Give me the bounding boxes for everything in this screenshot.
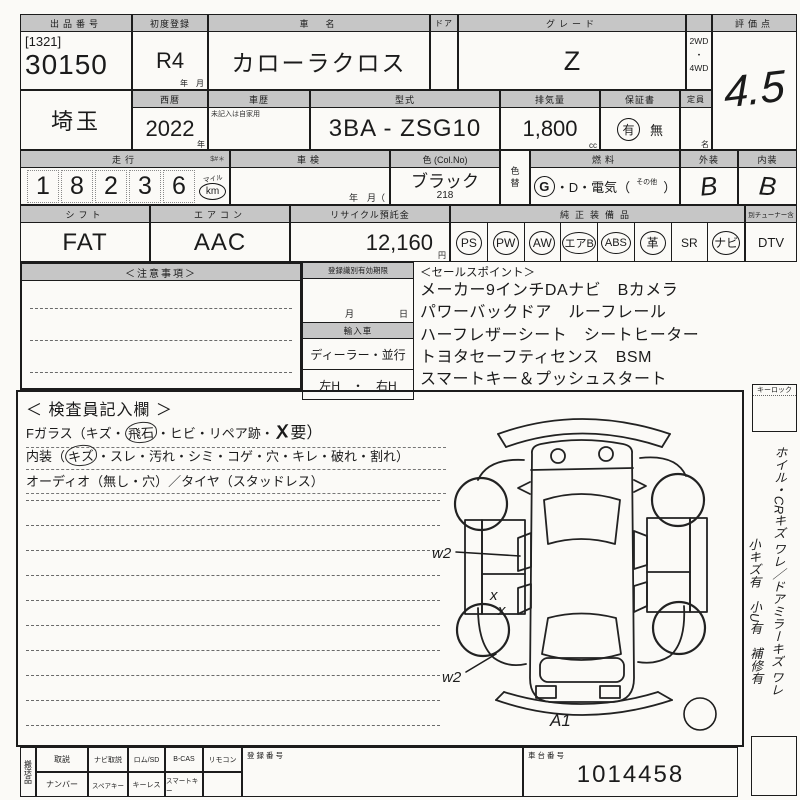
auction-number: 30150: [25, 49, 127, 81]
displacement-label: 排気量: [501, 91, 599, 108]
fuel-other: その他: [636, 177, 657, 187]
interior-suffix: ・スレ・汚れ・シミ・コゲ・穴・キレ・破れ・割れ）: [97, 449, 409, 464]
registration-number-label: 登録番号: [243, 748, 522, 763]
auction-sheet: 出品番号 [1321] 30150 初度登録 R4 年 月 車 名 カローラクロ…: [0, 0, 800, 800]
recycle-deposit-box: リサイクル預託金 12,160 円: [290, 205, 450, 262]
dashed-line: [26, 650, 440, 651]
color-box: 色 (Col.No) ブラック 218: [390, 150, 500, 205]
import-label: 輸入車: [303, 323, 413, 339]
equipment-navi: ナビ: [708, 223, 744, 262]
grade-value: Z: [459, 32, 685, 90]
item-spare-key: スペアキー: [88, 772, 128, 797]
mileage-label: 走行: [21, 151, 229, 168]
tail-light-left: [536, 686, 556, 698]
score-label: 評価点: [713, 15, 796, 32]
recycle-value: 12,160: [366, 230, 433, 256]
auction-number-label: 出品番号: [21, 15, 131, 32]
item-bcas: B-CAS: [165, 747, 203, 772]
windshield: [544, 494, 620, 544]
expiry-day-label: 日: [399, 307, 408, 320]
carry-items-header: 搬送品: [20, 747, 36, 797]
equipment-label: 純正装備品: [451, 206, 744, 223]
side-memo-wheel: ホイル・CRキズ ワレ／ドアミラーキズ ワレ: [765, 446, 789, 746]
capacity-label: 定員: [681, 91, 711, 108]
grade-label: グレード: [459, 15, 685, 32]
color-change-box: 色 替: [500, 150, 530, 205]
dtv-box: 別チューナー含 DTV: [745, 205, 797, 262]
recycle-label: リサイクル預託金: [291, 206, 449, 223]
exterior-grade: B: [699, 170, 719, 202]
mileage-digit: 1: [27, 170, 59, 203]
chassis-number-box: 車台番号 1014458: [523, 747, 738, 797]
front-glass-x-mark: X: [274, 421, 290, 445]
interior-label: 内装: [739, 151, 796, 168]
equipment-box: 純正装備品 PS PW AW エアB ABS 革 SR ナビ: [450, 205, 745, 262]
interior-grade: B: [758, 170, 777, 202]
exterior-label: 外装: [681, 151, 737, 168]
dashed-line: [26, 525, 440, 526]
dashed-line: [26, 675, 440, 676]
damage-mark-a1: A1: [549, 711, 571, 730]
expiry-month-label: 月: [345, 307, 354, 320]
first-registration-value: R4: [156, 48, 184, 74]
color-change-top: 色: [510, 166, 519, 178]
front-bumper-outline: [498, 419, 670, 434]
item-navi-manual: ナビ取説: [88, 747, 128, 772]
sales-point-line: パワーバックドア ルーフレール: [420, 302, 755, 324]
keylock-label: キーロック: [753, 385, 796, 396]
headlight-left: [551, 449, 565, 463]
warranty-no: 無: [650, 120, 663, 139]
shift-label: シフト: [21, 206, 149, 223]
sales-point-line: トヨタセーフティセンス BSM: [420, 347, 755, 369]
displacement-value: 1,800: [522, 116, 577, 142]
exterior-box: 外装 B: [680, 150, 738, 205]
registration-number-box: 登録番号: [242, 747, 523, 797]
model-value: 3BA - ZSG10: [311, 108, 499, 150]
history-box: 車歴 未記入は自家用: [208, 90, 310, 150]
dashed-line: [26, 550, 440, 551]
car-name-box: 車 名 カローラクロス: [208, 14, 430, 90]
dtv-note: 別チューナー含: [746, 206, 796, 223]
sales-points-label: ＜セールスポイント＞: [420, 264, 755, 280]
mirror-left: [518, 482, 530, 494]
fuel-label: 燃料: [531, 151, 679, 168]
hand-drawn-circle-mark: [684, 698, 716, 730]
mileage-unit-km: km: [199, 183, 226, 200]
color-change-bottom: 替: [510, 178, 519, 190]
shift-box: シフト FAT: [20, 205, 150, 262]
door-label: ドア: [431, 15, 457, 32]
right-bottom-empty-box: [751, 736, 797, 796]
right-front-window: [634, 531, 647, 569]
auction-lane: [1321]: [25, 34, 127, 49]
year-box: 西暦 2022 年: [132, 90, 208, 150]
dashed-line: [26, 725, 440, 726]
sales-points: ＜セールスポイント＞ メーカー9インチDAナビ Bカメラ パワーバックドア ルー…: [420, 264, 755, 388]
region-box: 埼玉: [20, 90, 132, 150]
registration-expiry-label: 登録識別有効期限: [303, 263, 413, 279]
warranty-yes: 有: [617, 118, 640, 141]
left-outer-panel: [465, 520, 482, 614]
drive-dot: ・: [687, 49, 711, 63]
car-body-outline: [530, 440, 634, 702]
equipment-aw: AW: [525, 223, 562, 262]
inspection-box: 車検 年 月（: [230, 150, 390, 205]
fuel-gasoline: G: [534, 176, 555, 197]
auction-number-box: 出品番号 [1321] 30150: [20, 14, 132, 90]
import-dealer-option: ディーラー・並行: [303, 339, 413, 370]
inspection-label: 車検: [231, 151, 389, 168]
dashed-line: [30, 340, 292, 341]
fuel-box: 燃料 G ・D・電気（ その他 ）: [530, 150, 680, 205]
aircon-value: AAC: [151, 223, 289, 262]
first-registration-label: 初度登録: [133, 15, 207, 32]
equipment-airbag: エアB: [561, 223, 598, 262]
color-code: 218: [437, 191, 454, 201]
item-number-plate: ナンバー: [36, 772, 88, 797]
fuel-close-paren: ）: [663, 177, 676, 196]
aircon-label: エアコン: [151, 206, 289, 223]
sales-point-line: メーカー9インチDAナビ Bカメラ: [420, 280, 755, 302]
damage-mark-w2-rear: w2: [442, 669, 462, 686]
rear-window: [542, 614, 621, 661]
mileage-digit: 3: [129, 170, 161, 203]
wheel-front-left: [455, 478, 507, 530]
recycle-unit: 円: [438, 250, 446, 261]
dashed-line: [26, 700, 440, 701]
warranty-label: 保証書: [601, 91, 679, 108]
drive-4wd: 4WD: [687, 62, 711, 76]
item-smart-key: スマートキー: [165, 772, 203, 797]
front-glass-line: Fガラス（キズ・飛石・ヒビ・リペア跡・X要）: [26, 419, 446, 448]
grade-box: グレード Z: [458, 14, 686, 90]
year-label: 西暦: [133, 91, 207, 108]
year-unit: 年: [197, 139, 205, 150]
mileage-unit-mile: マイル: [202, 171, 223, 184]
inspector-title: ＜ 検査員記入欄 ＞: [26, 396, 173, 420]
mileage-box: 走行 $#＊ 1 8 2 3 6 マイル km: [20, 150, 230, 205]
region-value: 埼玉: [21, 91, 131, 149]
model-label: 型式: [311, 91, 499, 108]
model-box: 型式 3BA - ZSG10: [310, 90, 500, 150]
dtv-value: DTV: [746, 223, 796, 262]
interior-box: 内装 B: [738, 150, 797, 205]
car-damage-diagram: w2 x x w2 A1: [428, 392, 744, 744]
history-note: 未記入は自家用: [209, 108, 309, 120]
interior-circled-item: キズ: [64, 444, 97, 467]
capacity-box: 定員 名: [680, 90, 712, 150]
item-manual: 取説: [36, 747, 88, 772]
audio-tire-line: オーディオ（無し・穴）／タイヤ（スタッドレス）: [26, 471, 446, 494]
mileage-digit: 2: [95, 170, 127, 203]
mileage-note: $#＊: [210, 154, 225, 164]
notes-box: ＜注意事項＞: [20, 262, 302, 390]
color-label: 色 (Col.No): [391, 151, 499, 168]
displacement-unit: cc: [589, 141, 597, 150]
front-glass-prefix: Fガラス（キズ・: [26, 426, 125, 441]
dashed-line: [26, 500, 440, 501]
displacement-box: 排気量 1,800 cc: [500, 90, 600, 150]
item-remote: リモコン: [203, 747, 242, 772]
score-value: 4.5: [724, 61, 786, 119]
equipment-leather: 革: [635, 223, 672, 262]
history-label: 車歴: [209, 91, 309, 108]
registration-expiry-box: 登録識別有効期限 月 日 輸入車 ディーラー・並行 左H ・ 右H: [302, 262, 414, 400]
fender-front-left: [478, 460, 524, 480]
first-registration-box: 初度登録 R4 年 月: [132, 14, 208, 90]
dashed-line: [30, 372, 292, 373]
car-name-value: カローラクロス: [209, 32, 429, 90]
car-name-label: 車 名: [209, 15, 429, 32]
front-glass-circled-item: 飛石: [124, 421, 157, 444]
rear-hatch: [540, 658, 624, 682]
dashed-line: [26, 600, 440, 601]
score-box: 評価点 4.5: [712, 14, 797, 150]
sales-point-line: スマートキー＆プッシュスタート: [420, 369, 755, 391]
wheel-rear-right: [653, 602, 705, 654]
shift-value: FAT: [21, 223, 149, 262]
mileage-digit: 8: [61, 170, 93, 203]
interior-line: 内装（キズ・スレ・汚れ・シミ・コゲ・穴・キレ・破れ・割れ）: [26, 445, 446, 470]
right-outer-panel: [690, 518, 707, 612]
dashed-line: [26, 575, 440, 576]
mirror-right: [634, 480, 646, 492]
headlight-right: [599, 447, 613, 461]
drive-label: [687, 15, 711, 32]
tail-light-right: [600, 686, 620, 698]
damage-mark-x-lower: x: [497, 602, 506, 619]
chassis-number-value: 1014458: [524, 761, 737, 789]
item-remote-value: [203, 772, 242, 797]
warranty-box: 保証書 有 無: [600, 90, 680, 150]
drive-box: 2WD ・ 4WD: [686, 14, 712, 90]
item-rom-sd: ロム/SD: [128, 747, 165, 772]
mileage-digit: 6: [163, 170, 195, 203]
capacity-unit: 名: [701, 139, 709, 150]
inspection-units: 年 月（: [349, 191, 385, 204]
item-keyless: キーレス: [128, 772, 165, 797]
equipment-ps: PS: [451, 223, 488, 262]
first-registration-units: 年 月: [180, 78, 204, 89]
equipment-pw: PW: [488, 223, 525, 262]
dashed-line: [30, 308, 292, 309]
front-glass-mid: ・ヒビ・リペア跡・: [157, 426, 274, 441]
dashed-line: [26, 625, 440, 626]
damage-mark-w2-front: w2: [432, 545, 452, 562]
fuel-options: ・D・電気（: [556, 177, 630, 196]
sales-point-line: ハーフレザーシート シートヒーター: [420, 325, 755, 347]
damage-mark-x-upper: x: [489, 587, 498, 604]
door-box: ドア: [430, 14, 458, 90]
right-rear-window: [634, 582, 647, 612]
equipment-sunroof: SR: [672, 223, 709, 262]
drive-2wd: 2WD: [687, 35, 711, 49]
color-value: ブラック: [411, 173, 479, 190]
year-value: 2022: [146, 116, 195, 142]
front-glass-suffix: 要）: [290, 425, 322, 442]
right-door-panel: [647, 518, 690, 612]
equipment-abs: ABS: [598, 223, 635, 262]
aircon-box: エアコン AAC: [150, 205, 290, 262]
interior-prefix: 内装（: [26, 449, 65, 464]
notes-label: ＜注意事項＞: [22, 264, 300, 281]
keylock-box: キーロック: [752, 384, 797, 432]
